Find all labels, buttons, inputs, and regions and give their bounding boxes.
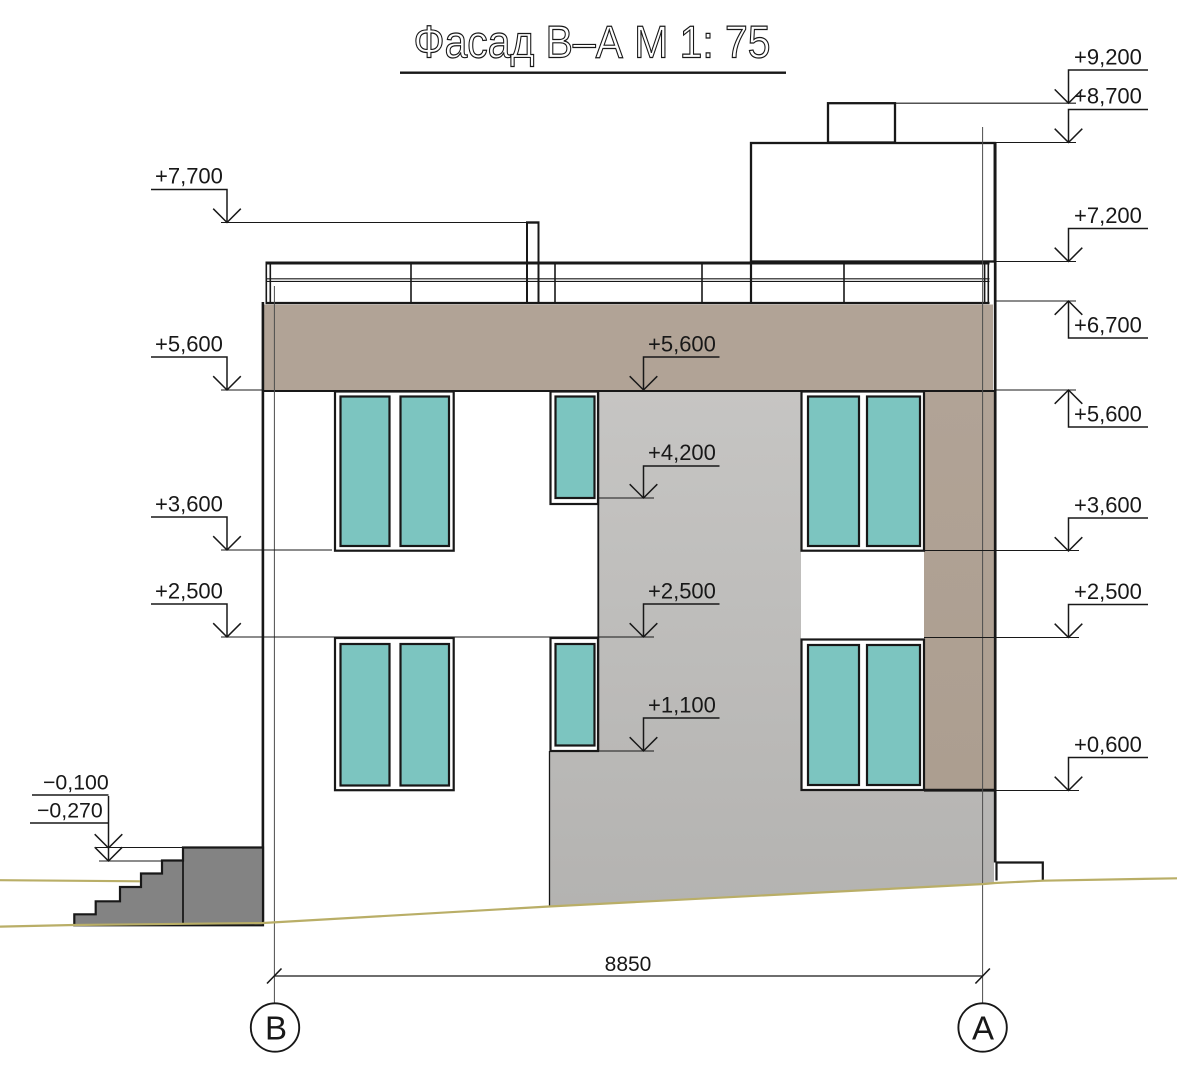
svg-text:+7,700: +7,700 xyxy=(155,164,223,189)
svg-text:+5,600: +5,600 xyxy=(648,332,716,357)
svg-text:+3,600: +3,600 xyxy=(1074,493,1142,518)
svg-text:+8,700: +8,700 xyxy=(1074,84,1142,109)
svg-text:+2,500: +2,500 xyxy=(1074,579,1142,604)
svg-text:+6,700: +6,700 xyxy=(1074,313,1142,338)
svg-text:+9,200: +9,200 xyxy=(1074,45,1142,70)
svg-text:+3,600: +3,600 xyxy=(155,492,223,517)
svg-text:+7,200: +7,200 xyxy=(1074,203,1142,228)
svg-text:+5,600: +5,600 xyxy=(155,332,223,357)
svg-text:+5,600: +5,600 xyxy=(1074,402,1142,427)
svg-text:+4,200: +4,200 xyxy=(648,440,716,465)
svg-text:А: А xyxy=(972,1010,994,1047)
svg-text:+1,100: +1,100 xyxy=(648,693,716,718)
svg-text:В: В xyxy=(265,1010,287,1047)
svg-text:Фасад В–А М 1: 75: Фасад В–А М 1: 75 xyxy=(414,17,771,68)
svg-text:+2,500: +2,500 xyxy=(648,579,716,604)
svg-text:−0,270: −0,270 xyxy=(37,799,103,823)
svg-text:8850: 8850 xyxy=(605,953,652,976)
svg-text:+0,600: +0,600 xyxy=(1074,732,1142,757)
svg-text:+2,500: +2,500 xyxy=(155,579,223,604)
svg-text:−0,100: −0,100 xyxy=(43,771,109,795)
